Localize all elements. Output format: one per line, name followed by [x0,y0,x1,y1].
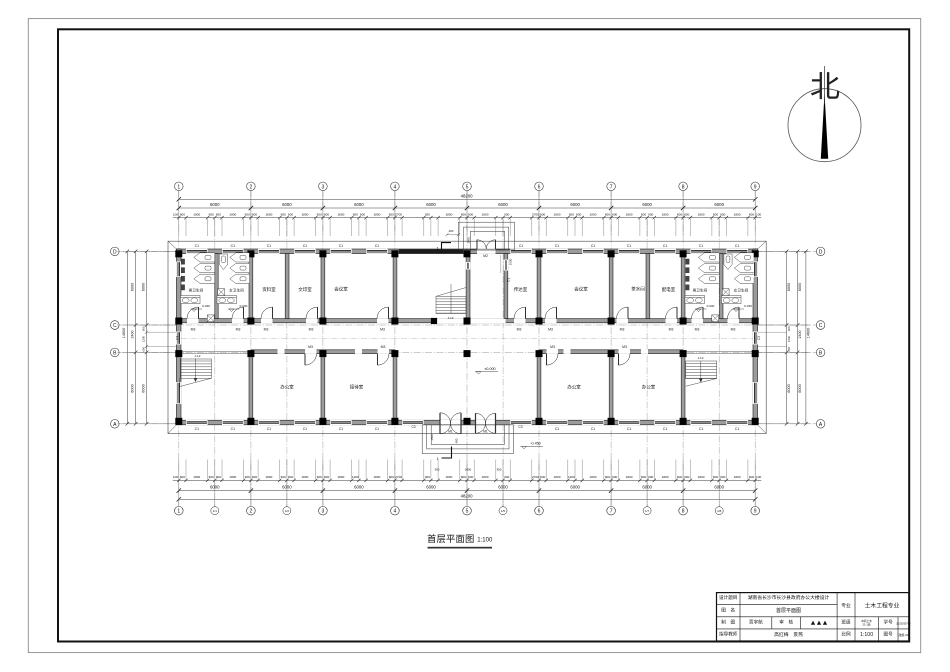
svg-text:600: 600 [461,213,466,217]
svg-text:1:100: 1:100 [477,537,493,543]
svg-text:湖南省长沙市长沙县政府办公大楼设计: 湖南省长沙市长沙县政府办公大楼设计 [748,594,830,601]
svg-text:C1: C1 [591,427,595,431]
svg-text:C1: C1 [303,244,307,248]
svg-text:6000: 6000 [141,384,145,392]
svg-text:首层平面图: 首层平面图 [427,533,475,544]
svg-text:6000: 6000 [570,202,580,207]
svg-text:C1: C1 [195,244,199,248]
svg-text:600: 600 [281,475,286,479]
svg-text:1200: 1200 [141,335,145,342]
svg-text:600: 600 [468,475,473,479]
svg-text:M3: M3 [380,328,385,332]
svg-text:M3: M3 [236,328,241,332]
svg-text:C1: C1 [375,244,379,248]
svg-text:6000: 6000 [282,202,292,207]
svg-text:设计题目: 设计题目 [719,594,737,601]
svg-text:0.030: 0.030 [202,304,210,308]
svg-text:300: 300 [504,475,509,479]
svg-text:图 名: 图 名 [721,607,735,614]
svg-text:C1: C1 [303,427,307,431]
svg-text:300: 300 [497,468,502,472]
svg-text:C1: C1 [195,427,199,431]
svg-text:J-12: J-12 [447,316,453,320]
svg-text:1800: 1800 [626,213,633,217]
svg-text:1800: 1800 [554,475,561,479]
svg-text:1800: 1800 [373,213,380,217]
svg-text:审 核: 审 核 [779,619,793,626]
svg-text:6000: 6000 [570,485,580,490]
svg-text:C1: C1 [663,427,667,431]
svg-text:±0.000: ±0.000 [484,367,495,371]
svg-text:600: 600 [245,475,250,479]
svg-text:贾宇航: 贾宇航 [749,619,763,626]
svg-text:1800: 1800 [229,213,236,217]
svg-text:1800: 1800 [734,475,741,479]
svg-text:400: 400 [449,229,454,233]
svg-text:M3: M3 [191,328,196,332]
svg-text:2: 2 [250,509,253,515]
svg-text:2700: 2700 [395,475,402,479]
svg-text:300: 300 [435,468,440,472]
svg-text:6000: 6000 [787,384,791,392]
svg-text:传达室: 传达室 [514,286,528,293]
svg-text:办公室: 办公室 [642,383,656,390]
svg-text:1800: 1800 [193,213,200,217]
svg-text:1800: 1800 [698,475,705,479]
svg-text:1800: 1800 [734,213,741,217]
svg-text:6000: 6000 [498,202,508,207]
svg-text:6000: 6000 [714,202,724,207]
svg-text:6000: 6000 [282,485,292,490]
svg-text:21-1班: 21-1班 [863,622,871,626]
svg-text:1800: 1800 [698,213,705,217]
svg-text:茶水间: 茶水间 [631,285,645,292]
svg-text:600: 600 [612,475,617,479]
svg-text:600: 600 [641,475,646,479]
svg-text:C1: C1 [699,244,703,248]
svg-text:C1: C1 [375,427,379,431]
svg-text:1200: 1200 [568,475,575,479]
svg-text:6000: 6000 [798,283,802,291]
svg-text:100: 100 [756,213,761,217]
svg-text:6: 6 [538,184,541,190]
svg-text:600: 600 [317,475,322,479]
svg-text:600: 600 [713,475,718,479]
svg-text:6000: 6000 [354,202,364,207]
svg-text:C1: C1 [519,244,523,248]
svg-text:6000: 6000 [130,384,134,392]
svg-text:C1: C1 [627,427,631,431]
svg-text:C3: C3 [176,336,180,340]
svg-text:0.030: 0.030 [707,304,715,308]
svg-text:600: 600 [461,475,466,479]
svg-text:土木工程专业: 土木工程专业 [865,601,900,609]
svg-text:C1: C1 [735,244,739,248]
svg-text:6000: 6000 [426,485,436,490]
svg-text:1800: 1800 [590,213,597,217]
svg-text:1800: 1800 [337,213,344,217]
svg-text:8: 8 [682,509,685,515]
svg-text:C1: C1 [627,244,631,248]
svg-text:9: 9 [754,509,757,515]
svg-text:1800: 1800 [465,468,472,472]
svg-text:D: D [113,249,117,255]
svg-text:600: 600 [684,475,689,479]
svg-text:1800: 1800 [301,213,308,217]
svg-text:1/5: 1/5 [501,509,506,513]
svg-text:班级: 班级 [841,619,851,626]
svg-text:建施-01: 建施-01 [899,632,909,637]
svg-text:M3: M3 [669,328,674,332]
svg-text:1800: 1800 [337,475,344,479]
svg-text:资料室: 资料室 [262,286,276,293]
svg-text:6000: 6000 [787,283,791,291]
svg-text:C1: C1 [663,244,667,248]
svg-text:首层平面图: 首层平面图 [776,607,801,614]
svg-text:会议室: 会议室 [574,285,588,292]
svg-text:600: 600 [787,346,791,351]
svg-text:7: 7 [610,184,613,190]
svg-text:600: 600 [209,475,214,479]
svg-text:C1: C1 [591,244,595,248]
svg-text:1800: 1800 [626,475,633,479]
svg-text:1/1: 1/1 [213,509,218,513]
svg-text:1: 1 [177,184,180,190]
svg-text:C3: C3 [757,336,761,340]
svg-text:1/8: 1/8 [717,509,722,513]
svg-text:100: 100 [173,213,178,217]
svg-text:C1: C1 [735,427,739,431]
svg-text:C1: C1 [507,278,511,282]
svg-text:600: 600 [288,475,293,479]
svg-text:400: 400 [455,438,459,443]
svg-text:学号: 学号 [883,619,893,626]
svg-text:600: 600 [648,475,653,479]
svg-text:600: 600 [605,475,610,479]
svg-text:2: 2 [250,184,253,190]
svg-text:6000: 6000 [642,485,652,490]
svg-text:2400: 2400 [130,331,134,339]
svg-text:1500: 1500 [466,237,470,244]
svg-text:4: 4 [394,184,397,190]
svg-text:C3: C3 [411,425,415,429]
svg-text:M3: M3 [620,328,625,332]
svg-text:1800: 1800 [482,475,489,479]
svg-text:C1: C1 [267,427,271,431]
svg-text:M3: M3 [550,345,555,349]
svg-text:1200: 1200 [787,335,791,342]
svg-text:C: C [113,323,117,329]
svg-text:制 图: 制 图 [721,619,735,626]
svg-text:2400: 2400 [798,331,802,339]
svg-text:1800: 1800 [662,475,669,479]
svg-text:600: 600 [677,475,682,479]
svg-text:3: 3 [322,184,325,190]
svg-text:2700: 2700 [532,475,539,479]
svg-text:M3: M3 [548,328,553,332]
svg-text:D: D [819,249,823,255]
svg-text:9: 9 [754,184,757,190]
svg-text:M3: M3 [381,345,386,349]
svg-text:600: 600 [389,475,394,479]
svg-text:比例: 比例 [841,631,851,638]
svg-text:1500: 1500 [509,258,513,265]
svg-text:14600: 14600 [122,328,126,339]
svg-text:M3: M3 [264,328,269,332]
svg-text:M3: M3 [308,345,313,349]
svg-text:1500: 1500 [430,434,434,441]
svg-text:600: 600 [540,475,545,479]
svg-text:M3: M3 [695,328,700,332]
svg-text:1800: 1800 [590,475,597,479]
svg-text:1/7: 1/7 [645,509,650,513]
svg-text:1200: 1200 [352,475,359,479]
svg-text:指导教师: 指导教师 [719,631,738,638]
svg-text:男卫生间: 男卫生间 [693,287,708,292]
svg-text:文印室: 文印室 [298,286,312,293]
svg-text:C3: C3 [518,425,522,429]
svg-text:600: 600 [787,326,791,331]
svg-text:600: 600 [141,346,145,351]
svg-text:C1: C1 [339,244,343,248]
svg-text:4: 4 [394,509,397,515]
svg-text:C1: C1 [699,427,703,431]
svg-text:配电室: 配电室 [662,286,676,293]
svg-text:C1: C1 [339,427,343,431]
svg-text:1800: 1800 [301,475,308,479]
svg-text:7: 7 [610,509,613,515]
svg-text:2023030790: 2023030790 [896,621,911,625]
svg-text:6000: 6000 [714,485,724,490]
svg-text:6000: 6000 [210,202,220,207]
svg-text:600: 600 [216,475,221,479]
svg-text:600: 600 [180,475,185,479]
svg-text:女卫生间: 女卫生间 [229,287,244,292]
svg-text:办公室: 办公室 [567,383,581,390]
svg-text:1800: 1800 [373,475,380,479]
svg-text:600: 600 [720,475,725,479]
svg-text:M3: M3 [731,328,736,332]
svg-text:6000: 6000 [130,283,134,291]
svg-text:J-12: J-12 [194,354,200,358]
svg-text:办公室: 办公室 [280,383,294,390]
svg-text:C1: C1 [555,427,559,431]
svg-text:-0.450: -0.450 [530,441,540,445]
svg-text:C: C [819,323,823,329]
svg-text:5: 5 [466,184,469,190]
svg-text:M1: M1 [483,430,488,434]
svg-text:1800: 1800 [554,213,561,217]
svg-text:1800: 1800 [662,213,669,217]
svg-text:M2: M2 [483,254,488,258]
svg-text:M3: M3 [309,328,314,332]
svg-text:600: 600 [141,326,145,331]
svg-text:M3: M3 [622,345,627,349]
svg-text:1:100: 1:100 [860,632,873,638]
svg-text:男卫生间: 男卫生间 [189,287,204,292]
svg-text:600: 600 [252,475,257,479]
svg-text:C1: C1 [231,427,235,431]
svg-text:专业: 专业 [841,602,851,609]
svg-text:1800: 1800 [265,475,272,479]
svg-text:6: 6 [538,509,541,515]
svg-text:接待室: 接待室 [350,383,364,390]
svg-text:J-12: J-12 [697,356,703,360]
svg-text:C1: C1 [267,244,271,248]
svg-text:会议室: 会议室 [334,285,348,292]
svg-text:0.030: 0.030 [744,304,752,308]
svg-text:女卫生间: 女卫生间 [734,287,749,292]
svg-text:6000: 6000 [210,485,220,490]
svg-text:1800: 1800 [445,213,452,217]
svg-text:6000: 6000 [141,283,145,291]
svg-text:0.030: 0.030 [240,304,248,308]
svg-text:1: 1 [177,509,180,515]
svg-text:100: 100 [173,475,178,479]
svg-text:6000: 6000 [798,384,802,392]
svg-text:6000: 6000 [498,485,508,490]
svg-text:北: 北 [810,71,840,104]
svg-text:8: 8 [682,184,685,190]
svg-text:1/2: 1/2 [285,509,290,513]
svg-text:14600: 14600 [806,328,810,339]
svg-text:5: 5 [466,509,469,515]
svg-text:600: 600 [749,475,754,479]
svg-text:6000: 6000 [642,202,652,207]
svg-text:M1: M1 [448,430,453,434]
svg-text:C1: C1 [231,244,235,248]
svg-text:100: 100 [756,475,761,479]
svg-text:M3: M3 [517,328,522,332]
svg-text:1800: 1800 [193,475,200,479]
svg-text:6000: 6000 [354,485,364,490]
svg-text:中机土木: 中机土木 [861,619,872,623]
svg-text:1800: 1800 [482,213,489,217]
svg-text:1800: 1800 [229,475,236,479]
svg-text:6000: 6000 [426,202,436,207]
svg-text:高红梅 景燕: 高红梅 景燕 [774,631,803,638]
svg-text:C1: C1 [555,244,559,248]
svg-text:3: 3 [322,509,325,515]
svg-text:1800: 1800 [265,213,272,217]
svg-text:1800: 1800 [445,475,452,479]
svg-text:600: 600 [324,475,329,479]
svg-text:300: 300 [425,475,430,479]
